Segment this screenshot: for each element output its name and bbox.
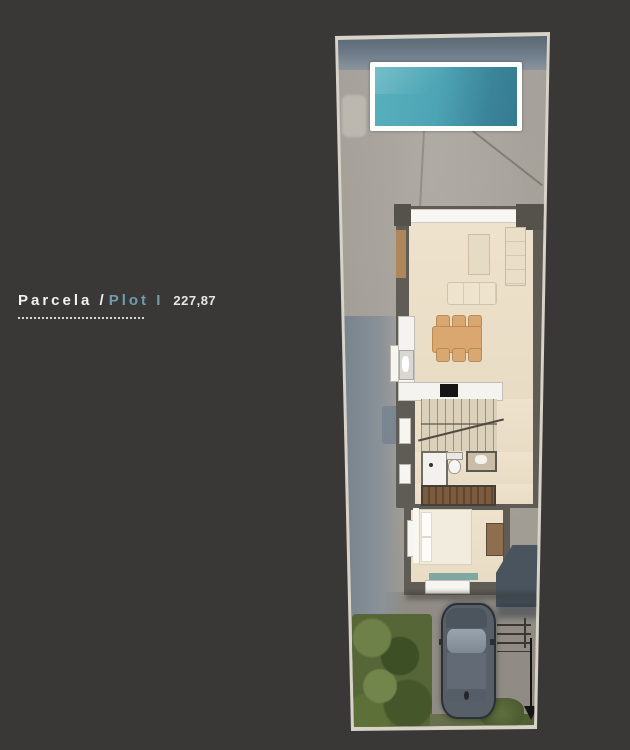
car-detail (464, 691, 469, 700)
gate-post (524, 618, 526, 648)
rug (468, 234, 490, 275)
plot-area-value: 227,87 (173, 293, 216, 308)
house-shadow (406, 592, 540, 600)
dining-chair (468, 348, 482, 362)
living-room-window (410, 209, 522, 223)
entry-court-shadow (497, 602, 539, 618)
wall-unit (505, 227, 526, 286)
car-windshield (447, 629, 486, 653)
plot-label: Plot I (109, 292, 164, 309)
toilet (448, 459, 461, 474)
parcela-label: Parcela / (18, 292, 107, 309)
dining-chair (452, 348, 466, 362)
pool-water (375, 67, 517, 126)
stair-window (399, 418, 411, 444)
plot-label-block: Parcela /Plot I227,87 (18, 292, 216, 319)
sink-basin (402, 356, 409, 372)
dotted-underline (18, 317, 144, 319)
car-roof (447, 653, 486, 689)
stair-railing (418, 418, 504, 441)
staircase (421, 399, 497, 451)
kitchen-sink (399, 350, 414, 380)
vanity-basin (475, 455, 487, 464)
plot-aerial-photo (0, 0, 630, 750)
swimming-pool (370, 62, 522, 131)
pool-glare (375, 67, 460, 94)
ground-light-patch (342, 95, 366, 137)
parked-car (441, 603, 496, 719)
cooktop (440, 384, 458, 397)
wall-post (394, 204, 411, 226)
shower-drain (429, 463, 433, 467)
window-sill (429, 573, 478, 580)
bathroom-vanity (466, 451, 497, 472)
dining-chair (436, 348, 450, 362)
car-mirror (439, 639, 443, 645)
desk (486, 523, 504, 556)
sofa (447, 282, 497, 305)
wardrobe (421, 485, 496, 506)
bathroom-window (399, 464, 411, 484)
car-hood (446, 608, 487, 628)
site-plan-page: Parcela /Plot I227,87 (0, 0, 630, 750)
shower (421, 451, 448, 488)
pillow (421, 512, 432, 537)
access-annotation-line (530, 638, 532, 710)
garden (352, 614, 432, 734)
side-door (396, 230, 406, 278)
car-mirror (490, 639, 494, 645)
pillow (421, 537, 432, 562)
